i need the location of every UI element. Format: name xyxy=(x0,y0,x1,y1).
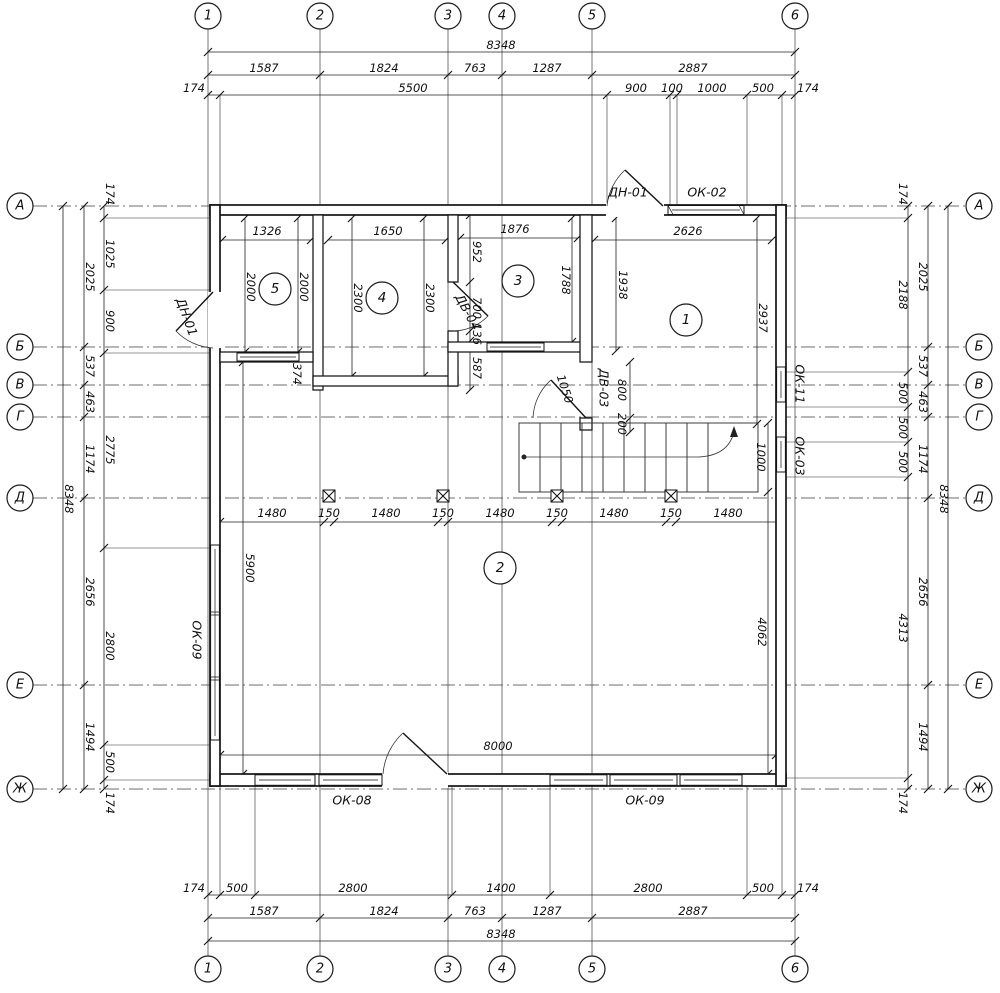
axis-col-2-bottom: 2 xyxy=(316,962,324,977)
dim-mid-8: 1480 xyxy=(713,506,742,520)
axis-row-v-right: В xyxy=(975,378,984,393)
dim-left-inner-3: 2775 xyxy=(103,435,117,464)
dim-bot-total: 8348 xyxy=(486,927,515,941)
stair-up-arrow-icon xyxy=(730,426,738,437)
axis-col-1-top: 1 xyxy=(204,9,212,24)
axis-col-5-top: 5 xyxy=(588,9,596,24)
dim-left-inner-2: 900 xyxy=(103,310,117,332)
dim-top-total: 8348 xyxy=(486,38,515,52)
room-4-number: 4 xyxy=(378,290,387,306)
interior-walls xyxy=(220,215,592,430)
room-5-width: 1326 xyxy=(252,224,281,238)
dim-top-inner-5: 500 xyxy=(752,81,774,95)
dims-bottom: 174 500 2800 1400 2800 500 174 1587 1824… xyxy=(183,881,819,941)
dim-mid-4: 1480 xyxy=(485,506,514,520)
axis-col-5-bottom: 5 xyxy=(588,962,596,977)
room-5-left-dim: 2000 xyxy=(244,272,258,301)
axis-col-3-bottom: 3 xyxy=(444,962,452,977)
dim-top-inner-3: 100 xyxy=(661,81,683,95)
dim-mid-5: 150 xyxy=(546,506,568,520)
dim-left-inner-0: 174 xyxy=(103,183,117,205)
label-window-ok11: ОК-11 xyxy=(793,364,808,403)
windows-ok08-bottom xyxy=(255,775,382,786)
grid-lines xyxy=(33,29,966,956)
dim-left-inner-4: 2800 xyxy=(103,631,117,660)
staircase xyxy=(519,423,758,492)
dim-left-total: 8348 xyxy=(62,484,76,513)
room-4-right-dim: 2300 xyxy=(423,283,437,312)
room-3-seg1: 952 xyxy=(470,241,484,263)
dim-left-mid-4: 2656 xyxy=(83,577,97,606)
label-window-ok03: ОК-03 xyxy=(793,436,808,475)
axis-row-v-left: В xyxy=(16,378,25,393)
sill-room3 xyxy=(487,343,544,351)
dims-left: 174 1025 900 2775 2800 500 174 2025 537 … xyxy=(62,183,117,814)
room-2-height-dim: 5900 xyxy=(243,553,257,582)
room-2-number: 2 xyxy=(496,560,505,576)
room-3-seg4: 587 xyxy=(470,357,484,380)
label-door-dn01-top: ДН-01 xyxy=(607,185,648,200)
dim-left-inner-1: 1025 xyxy=(103,239,117,268)
room-2-width-dim: 8000 xyxy=(483,739,512,753)
room-3-right-dim: 1788 xyxy=(559,265,573,294)
room-3-number: 3 xyxy=(514,273,523,289)
dim-dv03-offset: 200 xyxy=(615,413,629,435)
axis-row-d-left: Д xyxy=(14,491,25,506)
axis-row-e-right: Е xyxy=(975,678,984,693)
dim-left-mid-5: 1494 xyxy=(83,722,97,751)
dimension-lines xyxy=(59,48,952,945)
dim-left-mid-2: 463 xyxy=(83,391,97,413)
axis-row-zh-right: Ж xyxy=(971,782,987,797)
axis-row-e-left: Е xyxy=(16,678,25,693)
label-door-dv03: ДВ-03 xyxy=(597,368,612,408)
stair-width-dim: 1000 xyxy=(754,442,768,471)
room-1: 1 2626 1938 2937 xyxy=(616,224,770,336)
label-window-ok09-left: ОК-09 xyxy=(190,620,205,659)
dim-left-mid-3: 1174 xyxy=(83,444,97,473)
dims-right: 174 2188 500 500 500 4313 174 2025 537 4… xyxy=(896,183,951,814)
axis-col-4-bottom: 4 xyxy=(498,962,506,977)
dim-top-axes-2: 763 xyxy=(464,61,486,75)
room-1-width: 2626 xyxy=(673,224,702,238)
dim-right-mid-4: 2656 xyxy=(916,577,930,606)
room-5-right-dim: 2000 xyxy=(297,272,311,301)
door-bottom xyxy=(383,733,447,774)
dim-bot-inner-2: 2800 xyxy=(338,881,367,895)
dim-right-mid-1: 537 xyxy=(916,355,930,378)
dim-right-inner-5: 4313 xyxy=(896,613,910,642)
dim-right-mid-3: 1174 xyxy=(916,444,930,473)
dim-bot-inner-3: 1400 xyxy=(486,881,515,895)
sill-room5 xyxy=(237,353,299,361)
axis-row-d-right: Д xyxy=(973,491,984,506)
room-3: 3 1876 952 700 136 587 1788 xyxy=(470,222,573,380)
dim-right-mid-0: 2025 xyxy=(916,262,930,291)
room-5-number: 5 xyxy=(271,281,280,297)
dim-top-inner-0: 174 xyxy=(183,81,205,95)
label-window-ok08: ОК-08 xyxy=(332,793,371,808)
dim-mid-7: 150 xyxy=(660,506,682,520)
dim-top-inner-4: 1000 xyxy=(697,81,726,95)
dim-top-inner-2: 900 xyxy=(625,81,647,95)
dim-bot-inner-0: 174 xyxy=(183,881,205,895)
axis-col-1-bottom: 1 xyxy=(204,962,212,977)
outer-walls xyxy=(210,205,786,786)
dim-left-mid-1: 537 xyxy=(83,355,97,378)
room-4-left-dim: 2300 xyxy=(351,283,365,312)
dim-mid-3: 150 xyxy=(432,506,454,520)
axis-row-b-left: Б xyxy=(16,340,25,355)
window-ok03 xyxy=(777,437,786,472)
room-2-right-dim: 4062 xyxy=(755,617,769,646)
dim-top-axes-4: 2887 xyxy=(678,61,708,75)
dim-right-inner-3: 500 xyxy=(896,417,910,439)
dim-right-inner-4: 500 xyxy=(896,451,910,473)
dim-top-inner-6: 174 xyxy=(797,81,819,95)
dim-bot-axes-3: 1287 xyxy=(532,904,562,918)
dim-left-mid-0: 2025 xyxy=(83,262,97,291)
dim-right-mid-2: 463 xyxy=(916,391,930,413)
axis-row-a-left: А xyxy=(15,199,25,214)
dim-bot-inner-6: 174 xyxy=(797,881,819,895)
dim-dv03-swing: 1050 xyxy=(554,373,576,405)
room-1-number: 1 xyxy=(682,312,691,328)
room-5-wall-dim: 374 xyxy=(290,363,304,385)
dim-right-inner-6: 174 xyxy=(896,792,910,814)
floor-plan-canvas: 1 2 3 4 5 6 1 2 3 4 5 6 А Б В Г Д Е Ж А … xyxy=(0,0,1000,993)
axis-row-zh-left: Ж xyxy=(12,782,28,797)
room-1-right-dim: 2937 xyxy=(756,303,770,333)
axis-col-4-top: 4 xyxy=(498,9,506,24)
window-ok02 xyxy=(668,206,744,215)
dim-bot-axes-4: 2887 xyxy=(678,904,708,918)
dim-bot-axes-1: 1824 xyxy=(369,904,398,918)
dim-right-inner-2: 500 xyxy=(896,382,910,404)
dim-top-axes-3: 1287 xyxy=(532,61,562,75)
room-2: 2 5900 8000 4062 xyxy=(243,552,769,753)
dim-dv03-width: 800 xyxy=(615,379,629,401)
dim-top-axes-0: 1587 xyxy=(249,61,279,75)
room-3-width: 1876 xyxy=(500,222,529,236)
axis-col-6-top: 6 xyxy=(791,9,799,24)
dim-top-axes-1: 1824 xyxy=(369,61,398,75)
dim-mid-2: 1480 xyxy=(371,506,400,520)
dim-right-inner-1: 2188 xyxy=(896,280,910,309)
room-4-width: 1650 xyxy=(373,224,402,238)
dims-top: 8348 1587 1824 763 1287 2887 174 5500 90… xyxy=(183,38,819,95)
axis-bubbles-rows: А Б В Г Д Е Ж А Б В Г Д Е Ж xyxy=(7,193,992,802)
dim-top-inner-1: 5500 xyxy=(398,81,427,95)
dim-bot-inner-5: 500 xyxy=(752,881,774,895)
label-window-ok09-bottom: ОК-09 xyxy=(625,793,664,808)
dim-right-mid-5: 1494 xyxy=(916,722,930,751)
axis-col-6-bottom: 6 xyxy=(791,962,799,977)
dim-mid-1: 150 xyxy=(318,506,340,520)
windows-ok09-bottom xyxy=(550,775,742,786)
dim-bot-axes-0: 1587 xyxy=(249,904,279,918)
axis-bubbles-columns: 1 2 3 4 5 6 1 2 3 4 5 6 xyxy=(195,3,808,982)
dim-bot-axes-2: 763 xyxy=(464,904,486,918)
dim-right-total: 8348 xyxy=(937,484,951,513)
room-1-left-dim: 1938 xyxy=(616,270,630,299)
axis-row-b-right: Б xyxy=(975,340,984,355)
label-window-ok02: ОК-02 xyxy=(687,185,726,200)
dims-middle-row: 1480 150 1480 150 1480 150 1480 150 1480 xyxy=(257,506,742,520)
dim-right-inner-0: 174 xyxy=(896,183,910,205)
window-ok09-left xyxy=(211,545,220,740)
dim-mid-0: 1480 xyxy=(257,506,286,520)
axis-col-2-top: 2 xyxy=(316,9,324,24)
dim-bot-inner-4: 2800 xyxy=(633,881,662,895)
axis-col-3-top: 3 xyxy=(444,9,452,24)
dim-left-inner-6: 174 xyxy=(103,792,117,814)
window-ok11 xyxy=(777,367,786,402)
dim-mid-6: 1480 xyxy=(599,506,628,520)
axis-row-a-right: А xyxy=(974,199,984,214)
dim-bot-inner-1: 500 xyxy=(226,881,248,895)
dim-left-inner-5: 500 xyxy=(103,751,117,773)
